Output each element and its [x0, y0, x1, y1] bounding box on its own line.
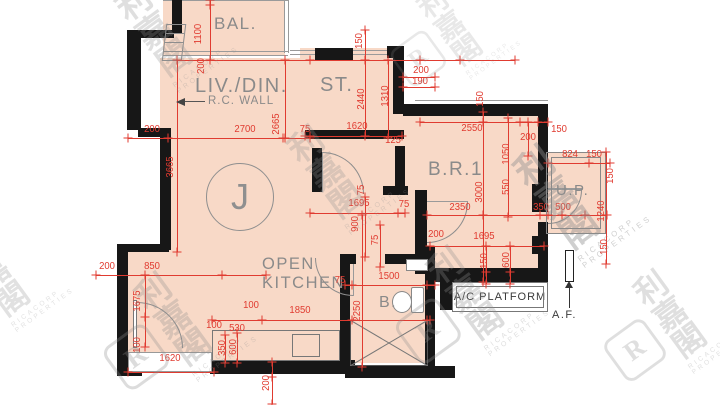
dimension-tick [602, 260, 611, 269]
dimension-tick [206, 1, 215, 10]
dimension-label: 150 [606, 168, 616, 184]
dimension-label: 75 [300, 125, 311, 135]
dimension-line [362, 215, 363, 367]
dimension-tick [540, 242, 549, 251]
dimension-tick [358, 363, 367, 372]
dimension-label: 1850 [289, 306, 310, 316]
dimension-label: 1675 [133, 290, 143, 311]
dimension-tick [482, 242, 491, 251]
dimension-tick [361, 132, 370, 141]
kitchen-stove [292, 334, 320, 357]
floor-plan: A/C PLATFORM BAL. LIV./DIN. R.C. WALL ST… [0, 0, 720, 405]
balcony-label: BAL. [214, 14, 257, 34]
wall-segment [312, 148, 322, 192]
dimension-label: 100 [133, 337, 143, 353]
dimension-label: 1050 [502, 143, 512, 164]
dimension-label: 350 [218, 340, 228, 356]
wall-segment [160, 132, 171, 250]
watermark-latin-text: RICACORP PROPERTIES [687, 323, 720, 376]
dimension-label: 150 [551, 125, 567, 135]
wall-segment [440, 282, 452, 310]
dimension-tick [534, 118, 543, 127]
dimension-label: 100 [243, 301, 259, 311]
store-label: ST. [320, 74, 353, 97]
watermark-cjk-text: 利嘉閣 [0, 201, 67, 321]
dimension-tick [426, 242, 435, 251]
wall-segment [383, 186, 408, 195]
dimension-tick [506, 280, 515, 289]
dimension-tick [384, 56, 393, 65]
dimension-tick [416, 118, 425, 127]
dimension-label: 2550 [461, 124, 482, 134]
dimension-label: 2665 [272, 113, 282, 134]
rc-wall-arrow-line [185, 101, 205, 102]
dimension-tick [268, 358, 277, 367]
rc-wall-label: R.C. WALL [208, 95, 274, 107]
dimension-tick [504, 213, 513, 222]
dimension-tick [306, 56, 315, 65]
dimension-line [177, 60, 178, 252]
acoustic-fin-label: A.F. [552, 309, 577, 321]
dimension-label: 150 [586, 150, 602, 160]
wall-segment [127, 36, 141, 130]
dimension-line [128, 372, 214, 373]
dimension-label: 2440 [357, 88, 367, 109]
dimension-label: 600 [502, 252, 512, 268]
dimension-tick [581, 211, 590, 220]
open-kitchen-label: OPEN KITCHEN [262, 255, 345, 293]
dimension-tick [221, 359, 230, 368]
af-arrow-icon [565, 281, 573, 288]
dimension-line [272, 362, 273, 404]
rc-wall-arrow-icon [176, 98, 185, 106]
bathroom-label: B. [379, 294, 397, 312]
acoustic-fin-box [565, 250, 574, 282]
dimension-tick [504, 114, 513, 123]
dimension-tick [141, 313, 150, 322]
dimension-tick [544, 159, 553, 168]
dimension-tick [279, 134, 288, 143]
dimension-label: 1310 [381, 85, 391, 106]
dimension-label: 200 [99, 262, 115, 272]
dimension-label: 2250 [353, 300, 363, 321]
dimension-tick [124, 134, 133, 143]
dimension-label: 150 [480, 253, 490, 269]
ac-platform-inner-line [456, 286, 544, 308]
dimension-line [380, 225, 381, 267]
dimension-line [285, 60, 286, 138]
watermark: 利嘉閣RICACORP PROPERTIES [0, 201, 76, 334]
dimension-label: 75 [335, 276, 346, 286]
watermark-latin-text: RICACORP PROPERTIES [10, 281, 75, 334]
dimension-tick [173, 248, 182, 257]
dimension-label: 1240 [597, 200, 607, 221]
dimension-tick [516, 118, 525, 127]
dimension-label: 150 [600, 239, 610, 255]
dimension-label: 500 [555, 203, 571, 213]
dimension-label: 1100 [194, 24, 204, 44]
dimension-label: 200 [413, 66, 429, 76]
utility-platform-label: U.P. [556, 182, 589, 199]
dimension-tick [399, 83, 408, 92]
dimension-tick [479, 108, 488, 117]
watermark-cjk-text: 利嘉閣 [629, 243, 720, 363]
dimension-label: 200 [520, 133, 536, 143]
dimension-tick [306, 209, 315, 218]
dimension-label: 850 [144, 262, 160, 272]
toilet-tank [411, 287, 424, 313]
unit-label: J [231, 176, 249, 218]
dimension-tick [348, 281, 357, 290]
dimension-label: 1695 [348, 199, 369, 209]
dimension-label: 200 [144, 125, 160, 135]
dimension-line [96, 275, 266, 276]
dimension-label: 1500 [378, 272, 399, 282]
dimension-tick [431, 73, 440, 82]
dimension-label: 530 [229, 324, 245, 334]
af-arrow-line [569, 288, 570, 308]
dimension-label: 200 [428, 230, 444, 240]
dimension-label: 600 [229, 339, 239, 355]
dimension-label: 3665 [166, 156, 176, 177]
dimension-label: 75 [357, 185, 367, 196]
dimension-label: 100 [206, 321, 222, 331]
dimension-label: 150 [476, 91, 486, 107]
open-kitchen-line1: OPEN [262, 255, 345, 274]
wall-segment [315, 48, 353, 60]
dimension-label: 350 [533, 203, 549, 213]
balcony-rail-line [284, 0, 285, 53]
dimension-tick [173, 56, 182, 65]
dimension-tick [482, 280, 491, 289]
dimension-tick [218, 271, 227, 280]
dimension-label: 900 [351, 216, 361, 232]
dimension-label: 200 [197, 58, 207, 74]
dimension-tick [210, 368, 219, 377]
dimension-line [345, 285, 435, 286]
basin [406, 259, 428, 271]
unit-circle: J [206, 163, 274, 231]
wall-segment [395, 146, 405, 190]
dimension-label: 75 [399, 200, 410, 210]
dimension-tick [423, 211, 432, 220]
dimension-tick [233, 359, 242, 368]
dimension-tick [258, 316, 267, 325]
dimension-tick [431, 83, 440, 92]
dimension-label: 2350 [449, 203, 470, 213]
dimension-tick [423, 316, 432, 325]
dimension-line [212, 320, 430, 321]
dimension-label: 150 [355, 33, 365, 49]
dimension-tick [164, 134, 173, 143]
dimension-tick [376, 221, 385, 230]
dimension-tick [124, 368, 133, 377]
dimension-tick [511, 56, 520, 65]
dimension-tick [399, 73, 408, 82]
dimension-tick [479, 211, 488, 220]
dimension-line [145, 275, 146, 347]
dimension-label: 75 [371, 235, 381, 246]
dimension-label: 1620 [346, 122, 367, 132]
balcony-rail-line [288, 0, 289, 53]
dimension-label: 550 [502, 179, 512, 195]
dimension-tick [281, 56, 290, 65]
dimension-tick [423, 281, 432, 290]
dimension-tick [524, 118, 533, 127]
dimension-tick [416, 56, 425, 65]
dimension-label: 200 [262, 375, 272, 391]
dimension-tick [456, 56, 465, 65]
dimension-label: 125 [385, 136, 401, 146]
bedroom1-label: B.R.1 [428, 159, 483, 181]
dimension-label: 190 [412, 77, 428, 87]
dimension-line [508, 118, 509, 217]
dimension-tick [602, 148, 611, 157]
dimension-tick [431, 281, 440, 290]
dimension-label: 2700 [234, 125, 255, 135]
dimension-tick [524, 152, 533, 161]
dimension-tick [361, 56, 370, 65]
dimension-label: 1695 [473, 232, 494, 242]
open-kitchen-line2: KITCHEN [262, 274, 345, 293]
dimension-tick [506, 268, 515, 277]
dimension-line [548, 163, 610, 164]
dimension-tick [268, 400, 277, 405]
dimension-tick [506, 242, 515, 251]
wall-segment [117, 250, 128, 370]
dimension-label: 824 [562, 150, 578, 160]
dimension-label: 1620 [159, 354, 180, 364]
dimension-label: 3000 [475, 181, 485, 202]
watermark-logo-icon: R [601, 316, 670, 385]
